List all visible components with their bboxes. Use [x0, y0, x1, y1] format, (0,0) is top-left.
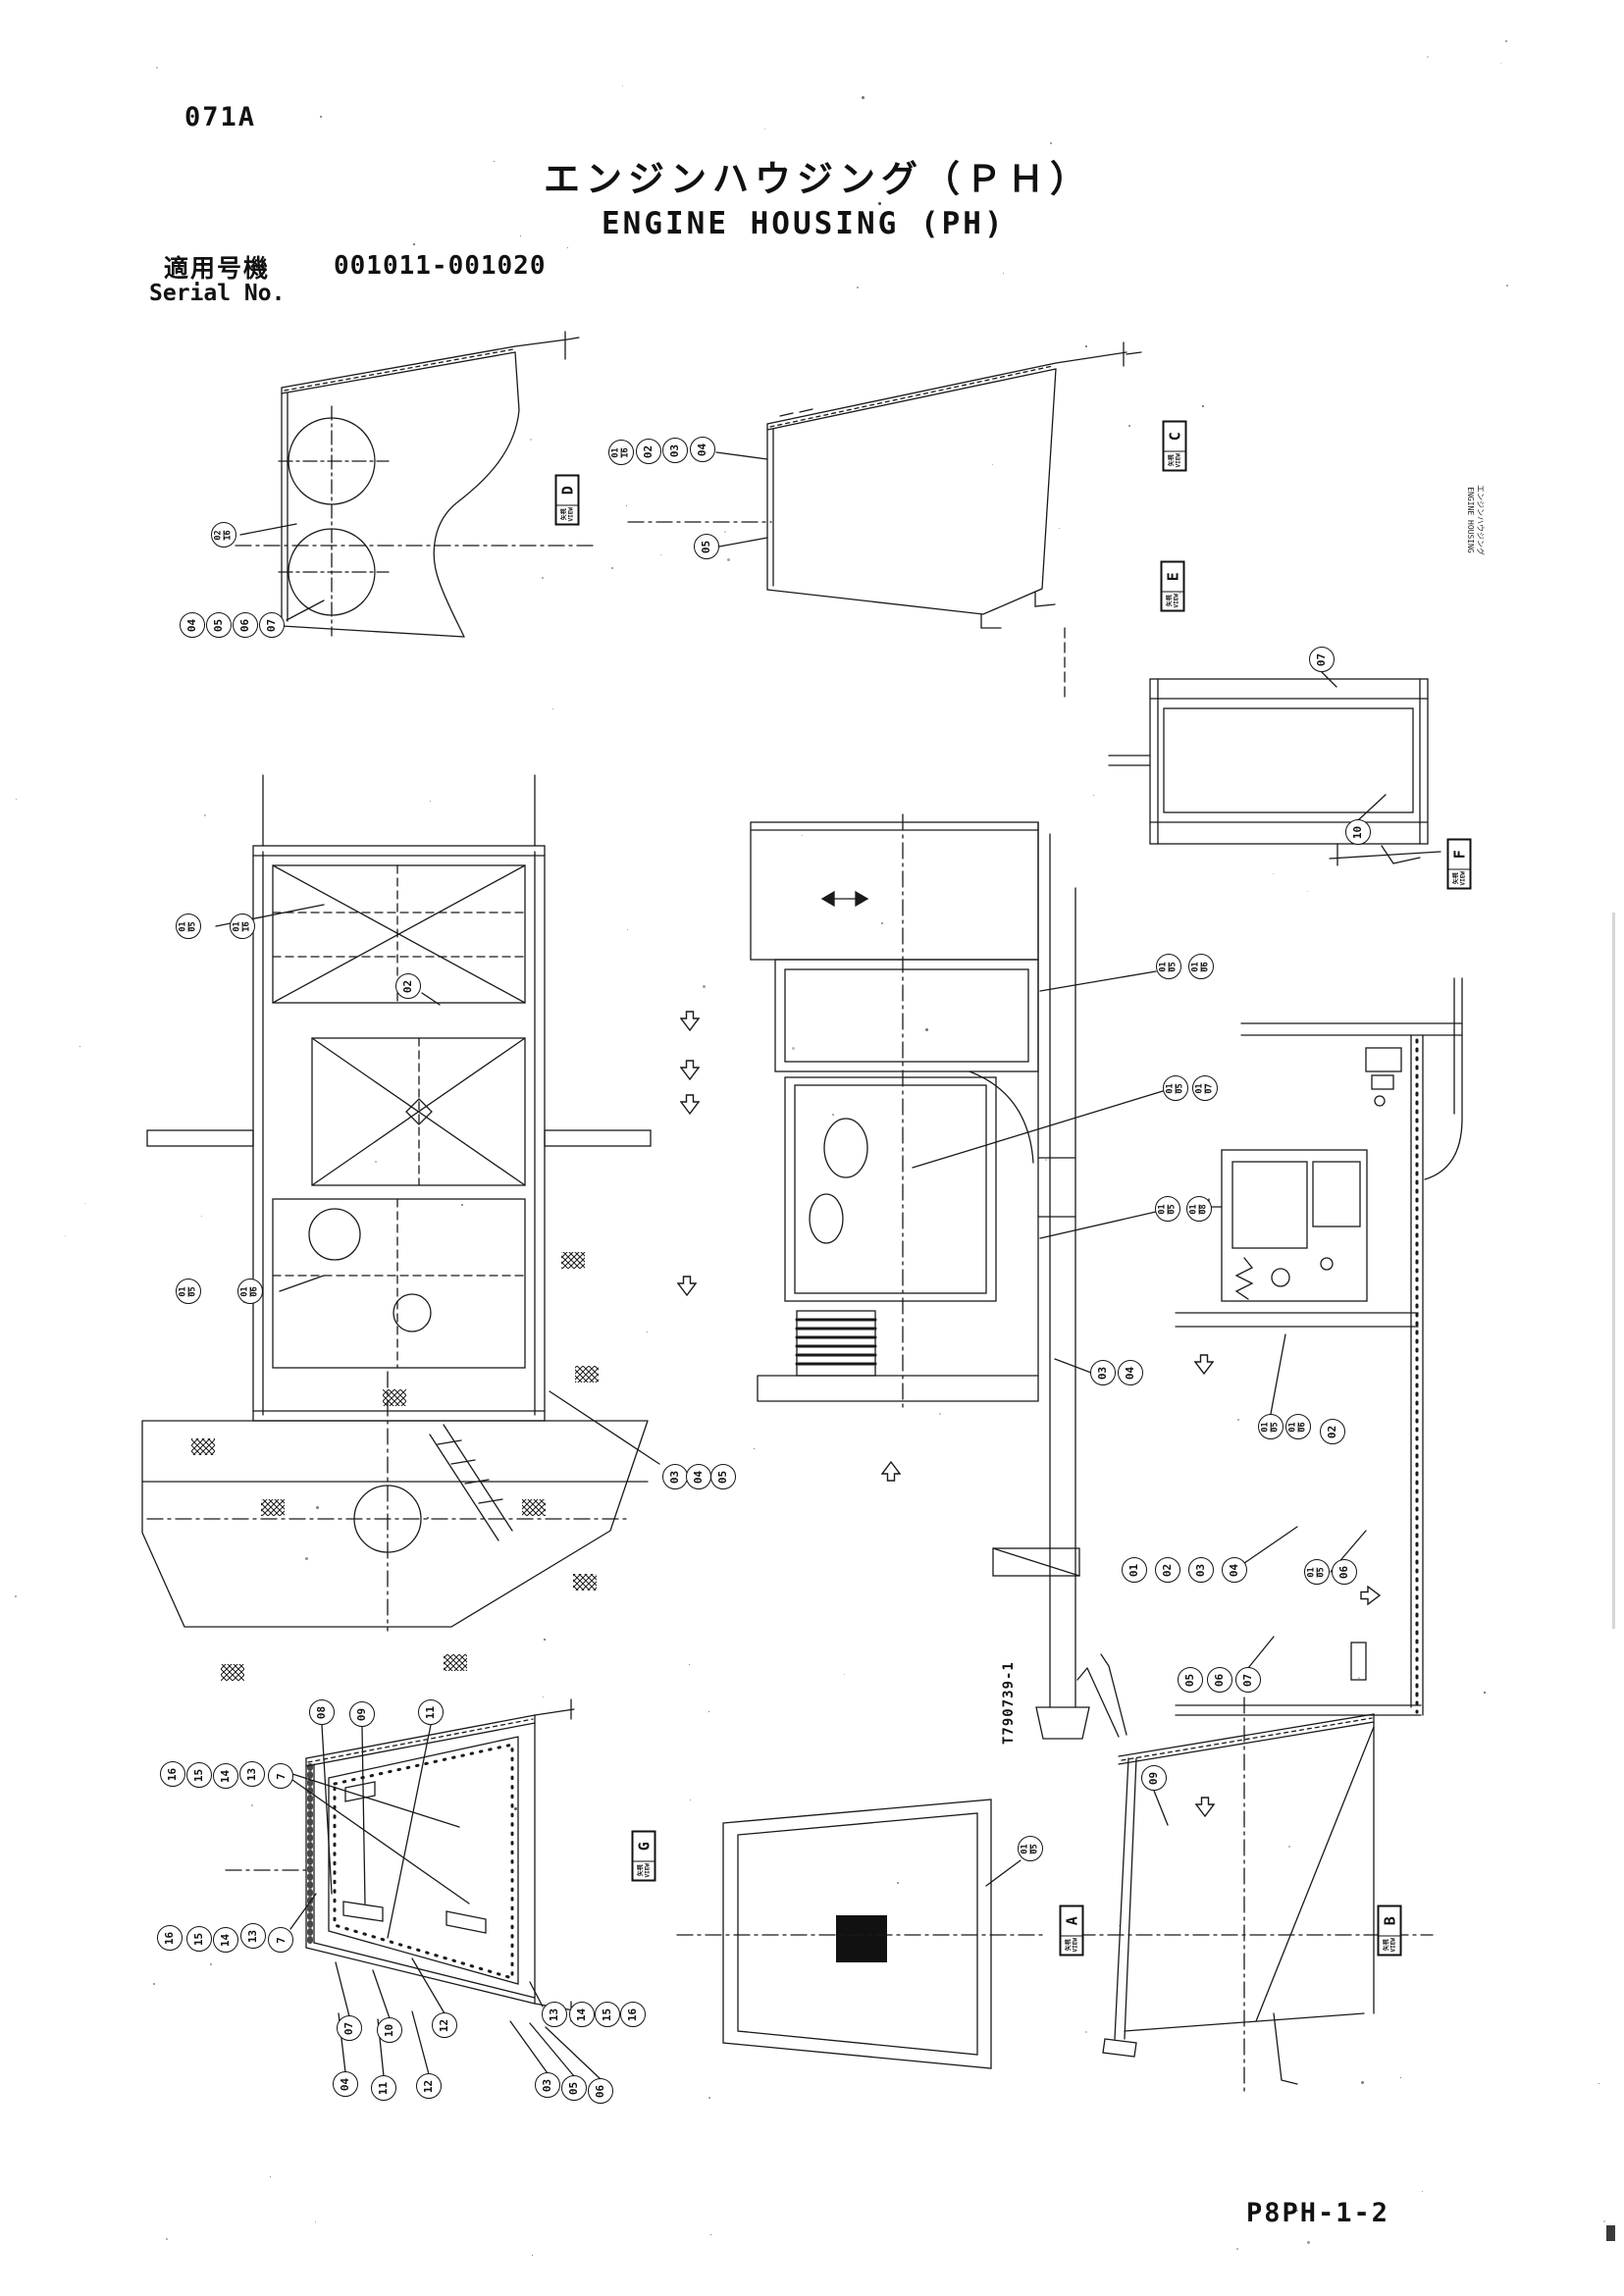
- scan-dust-speck: [514, 1807, 517, 1810]
- view-caption: 矢視VIEW: [1449, 868, 1470, 887]
- part-callout[interactable]: 03: [662, 438, 688, 463]
- callout-number: 05: [1185, 1673, 1196, 1686]
- part-callout[interactable]: 02: [395, 973, 421, 999]
- section-arrow-icon: [680, 1093, 700, 1115]
- part-callout[interactable]: 0105: [1163, 1075, 1188, 1101]
- callout-number: 10: [1353, 825, 1364, 838]
- scan-dust-speck: [243, 1301, 245, 1303]
- callout-number: 04: [1126, 1366, 1136, 1379]
- callout-number: 16: [242, 921, 252, 931]
- callout-number: 01: [1129, 1563, 1140, 1576]
- scan-dust-speck: [204, 814, 206, 816]
- scan-dust-speck: [708, 2097, 710, 2099]
- scan-dust-speck: [530, 439, 532, 441]
- scan-dust-speck: [832, 1114, 834, 1116]
- diagram-bottom-right-frame: [1077, 1654, 1433, 2095]
- scan-dust-speck: [754, 1448, 755, 1449]
- scan-dust-speck: [857, 287, 859, 288]
- scan-dust-speck: [1361, 2081, 1364, 2084]
- scan-dust-speck: [15, 1595, 17, 1597]
- callout-number: 03: [1196, 1563, 1207, 1576]
- callout-number: 01: [180, 921, 188, 931]
- scan-dust-speck: [611, 567, 613, 569]
- view-letter: C: [1165, 423, 1185, 451]
- callout-number: 03: [670, 444, 681, 456]
- scan-dust-speck: [844, 1674, 845, 1675]
- parts-catalog-page: 071A エンジンハウジング（ＰＨ） ENGINE HOUSING (PH) 適…: [0, 0, 1624, 2296]
- scan-dust-speck: [305, 1557, 308, 1560]
- part-callout[interactable]: 0216: [211, 522, 236, 548]
- callout-number: 05: [718, 1470, 729, 1483]
- part-callout[interactable]: 0108: [1186, 1196, 1212, 1222]
- scan-dust-speck: [413, 243, 415, 245]
- scan-dust-speck: [153, 1983, 155, 1985]
- scan-dust-speck: [1427, 56, 1429, 58]
- callout-number: 06: [1201, 962, 1211, 971]
- part-callout[interactable]: 0107: [1192, 1075, 1218, 1101]
- scan-dust-speck: [1288, 1846, 1290, 1848]
- callout-number: 01: [1196, 1083, 1205, 1093]
- part-callout[interactable]: 16: [157, 1925, 183, 1951]
- part-callout[interactable]: 0105: [1258, 1414, 1283, 1439]
- scan-dust-speck: [1484, 1692, 1486, 1694]
- scan-dust-speck: [689, 1664, 690, 1665]
- part-callout[interactable]: 7: [268, 1927, 293, 1953]
- scan-dust-speck: [1296, 2210, 1298, 2212]
- callout-number: 05: [1176, 1083, 1185, 1093]
- callout-number: 12: [440, 2018, 450, 2031]
- part-callout[interactable]: 08: [309, 1699, 335, 1725]
- callout-number: 02: [215, 530, 224, 540]
- callout-number: 16: [168, 1767, 179, 1780]
- part-number-label: T790739-1: [1001, 1661, 1017, 1745]
- part-callout[interactable]: 15: [595, 2002, 620, 2027]
- section-arrow-icon: [680, 1010, 700, 1031]
- scan-dust-speck: [1093, 795, 1094, 796]
- part-callout[interactable]: 03: [535, 2072, 560, 2098]
- callout-number: 10: [385, 2023, 395, 2036]
- view-label-f: 矢視VIEWF: [1447, 839, 1472, 890]
- scan-dust-speck: [542, 577, 544, 579]
- callout-number: 16: [165, 1931, 176, 1944]
- part-callout[interactable]: 0105: [1304, 1559, 1330, 1585]
- view-label-e: 矢視VIEWE: [1161, 561, 1185, 612]
- scan-dust-speck: [1500, 63, 1501, 64]
- callout-number: 05: [569, 2081, 580, 2094]
- part-callout[interactable]: 07: [337, 2015, 362, 2041]
- part-callout[interactable]: 14: [569, 2002, 595, 2027]
- callout-number: 03: [670, 1470, 681, 1483]
- view-letter: A: [1062, 1907, 1082, 1936]
- scan-dust-speck: [1045, 1159, 1047, 1161]
- scan-dust-speck: [925, 1028, 928, 1031]
- callout-number: 13: [550, 2008, 560, 2020]
- part-callout[interactable]: 06: [233, 612, 258, 638]
- callout-number: 01: [1160, 962, 1169, 971]
- part-callout[interactable]: 01: [1122, 1557, 1147, 1583]
- scan-dust-speck: [1179, 593, 1180, 594]
- section-arrow-icon: [1194, 1353, 1214, 1375]
- scan-dust-speck: [375, 1161, 377, 1163]
- part-callout[interactable]: 0105: [176, 913, 201, 939]
- diagram-roof-panel: [142, 775, 659, 1681]
- callout-number: 05: [1169, 962, 1179, 971]
- scan-dust-speck: [727, 558, 730, 561]
- view-caption: 矢視VIEW: [1380, 1935, 1400, 1954]
- scan-dust-speck: [1307, 891, 1308, 892]
- scan-dust-speck: [1202, 405, 1204, 407]
- part-callout[interactable]: 03: [662, 1464, 688, 1489]
- scan-dust-speck: [703, 985, 706, 988]
- view-label-b: 矢視VIEWB: [1378, 1905, 1402, 1957]
- callout-number: 05: [214, 618, 225, 631]
- part-callout[interactable]: 0105: [1155, 1196, 1180, 1222]
- view-label-a: 矢視VIEWA: [1060, 1905, 1084, 1957]
- scan-edge-artifact: [1612, 913, 1615, 1629]
- scan-dust-speck: [166, 2238, 168, 2240]
- callout-number: 02: [644, 444, 655, 457]
- scan-dust-speck: [315, 2221, 316, 2222]
- scan-dust-speck: [320, 116, 322, 118]
- callout-number: 02: [403, 979, 414, 992]
- callout-number: 12: [424, 2079, 435, 2092]
- part-callout[interactable]: 15: [186, 1926, 212, 1952]
- part-callout[interactable]: 06: [1332, 1559, 1357, 1585]
- scan-dust-speck: [520, 235, 521, 236]
- callout-number: 04: [1230, 1563, 1240, 1576]
- scan-dust-speck: [690, 1800, 691, 1800]
- view-letter: E: [1163, 563, 1183, 592]
- scan-dust-speck: [251, 1804, 253, 1806]
- diagram-right-frame: [993, 978, 1462, 1715]
- section-arrow-icon: [1195, 1796, 1215, 1817]
- callout-number: 01: [180, 1286, 188, 1296]
- callout-number: 11: [379, 2081, 390, 2094]
- scan-dust-speck: [1050, 142, 1052, 144]
- part-callout[interactable]: 11: [418, 1699, 444, 1725]
- scan-dust-speck: [1603, 2220, 1605, 2222]
- scan-dust-speck: [65, 1235, 66, 1236]
- scan-dust-speck: [544, 1639, 546, 1641]
- diagram-top-left-cover: [236, 332, 595, 637]
- view-caption: 矢視VIEW: [1062, 1935, 1082, 1954]
- diagram-f-view-panel: [1109, 672, 1441, 865]
- scan-dust-speck: [792, 1047, 795, 1050]
- callout-number: 02: [1328, 1425, 1338, 1437]
- section-arrow-icon: [881, 1461, 901, 1483]
- scan-dust-speck: [627, 929, 628, 930]
- scan-dust-speck: [708, 1711, 709, 1712]
- callout-number: 08: [317, 1705, 328, 1718]
- part-callout[interactable]: 0105: [176, 1278, 201, 1304]
- callout-number: 05: [1271, 1422, 1281, 1432]
- callout-number: 05: [1168, 1204, 1178, 1214]
- part-callout[interactable]: 04: [686, 1464, 711, 1489]
- part-callout[interactable]: 05: [1178, 1667, 1203, 1693]
- section-arrow-icon: [677, 1275, 697, 1296]
- view-letter: F: [1449, 841, 1470, 869]
- part-callout[interactable]: 0105: [1018, 1836, 1043, 1861]
- part-callout[interactable]: 02: [1155, 1557, 1180, 1583]
- scan-corner-mark: [1606, 2225, 1615, 2241]
- scan-dust-speck: [992, 464, 993, 465]
- scan-dust-speck: [1598, 2083, 1599, 2084]
- scan-dust-speck: [660, 554, 661, 555]
- callout-number: 01: [1262, 1422, 1271, 1432]
- scan-dust-speck: [1237, 1419, 1239, 1421]
- scan-dust-speck: [626, 505, 627, 506]
- part-callout[interactable]: 05: [206, 612, 232, 638]
- callout-number: 07: [1243, 1673, 1254, 1686]
- scan-dust-speck: [897, 1882, 899, 1884]
- callout-number: 01: [1022, 1844, 1030, 1853]
- callout-number: 02: [1163, 1563, 1174, 1576]
- scan-dust-speck: [270, 2176, 271, 2177]
- scan-dust-speck: [543, 1696, 544, 1697]
- side-margin-note: エンジンハウジング ENGINE HOUSING: [1465, 456, 1485, 584]
- callout-number: 05: [1030, 1844, 1040, 1853]
- scan-dust-speck: [881, 922, 883, 924]
- callout-number: 08: [1199, 1204, 1209, 1214]
- callout-number: 01: [241, 1286, 250, 1296]
- callout-number: 16: [224, 530, 234, 540]
- part-callout[interactable]: 09: [1141, 1765, 1167, 1791]
- scan-dust-speck: [1119, 1925, 1120, 1926]
- scan-dust-speck: [622, 85, 623, 86]
- part-callout[interactable]: 13: [240, 1923, 266, 1949]
- scan-dust-speck: [764, 129, 765, 130]
- callout-number: 05: [1317, 1567, 1327, 1577]
- part-callout[interactable]: 05: [710, 1464, 736, 1489]
- part-callout[interactable]: 0105: [1156, 954, 1181, 979]
- callout-number: 01: [234, 921, 242, 931]
- scan-dust-speck: [1003, 273, 1004, 274]
- callout-number: 11: [426, 1705, 437, 1718]
- part-callout[interactable]: 04: [690, 437, 715, 462]
- callout-number: 01: [1167, 1083, 1176, 1093]
- part-callout[interactable]: 0116: [608, 440, 634, 465]
- callout-number: 01: [1190, 1204, 1199, 1214]
- scan-dust-speck: [1236, 2248, 1238, 2250]
- callout-number: 01: [1308, 1567, 1317, 1577]
- part-callout[interactable]: 12: [432, 2012, 457, 2038]
- part-callout[interactable]: 13: [542, 2002, 567, 2027]
- scan-dust-speck: [461, 1204, 463, 1206]
- callout-number: 14: [221, 1769, 232, 1782]
- view-label-c: 矢視VIEWC: [1163, 421, 1187, 472]
- scan-dust-speck: [567, 247, 568, 248]
- callout-number: 05: [188, 1286, 198, 1296]
- callout-number: 15: [194, 1932, 205, 1945]
- scan-dust-speck: [1085, 345, 1087, 347]
- scan-dust-speck: [802, 835, 803, 836]
- scan-dust-speck: [1506, 285, 1508, 287]
- scan-dust-speck: [862, 96, 864, 99]
- callout-number: 07: [1317, 652, 1328, 665]
- callout-number: 09: [1149, 1771, 1160, 1784]
- scan-dust-speck: [1422, 2191, 1423, 2192]
- view-letter: D: [557, 477, 578, 505]
- scan-dust-speck: [1128, 425, 1130, 427]
- scan-dust-speck: [1085, 2031, 1087, 2033]
- scan-dust-speck: [1059, 528, 1060, 529]
- callout-number: 16: [621, 447, 631, 457]
- diagram-center-panel: [751, 814, 1163, 1739]
- scan-dust-speck: [210, 1963, 212, 1965]
- scan-dust-speck: [84, 1203, 85, 1204]
- part-callout[interactable]: 16: [160, 1761, 185, 1787]
- callout-number: 07: [267, 618, 278, 631]
- callout-number: 15: [194, 1768, 205, 1781]
- scan-dust-speck: [1358, 1677, 1360, 1679]
- callout-number: 04: [187, 618, 198, 631]
- part-callout[interactable]: 0106: [1285, 1414, 1311, 1439]
- scan-dust-speck: [316, 1506, 319, 1509]
- callout-number: 03: [543, 2078, 553, 2091]
- diagram-bottom-middle-front: [677, 1800, 1045, 2068]
- part-callout[interactable]: 04: [180, 612, 205, 638]
- callout-number: 7: [276, 1937, 287, 1944]
- side-note-japanese: エンジンハウジング: [1475, 456, 1485, 584]
- scan-dust-speck: [427, 1517, 429, 1519]
- section-arrow-icon: [1359, 1586, 1381, 1605]
- callout-number: 7: [276, 1773, 287, 1780]
- callout-number: 07: [344, 2021, 355, 2034]
- callout-number: 04: [698, 443, 708, 455]
- scan-dust-speck: [724, 531, 726, 533]
- view-label-g: 矢視VIEWG: [632, 1831, 656, 1882]
- scan-dust-speck: [1273, 873, 1274, 874]
- part-callout[interactable]: 03: [1188, 1557, 1214, 1583]
- callout-number: 14: [577, 2008, 588, 2020]
- scan-dust-speck: [532, 2255, 533, 2256]
- callout-number: 14: [221, 1933, 232, 1946]
- side-note-english: ENGINE HOUSING: [1465, 456, 1475, 584]
- part-callout[interactable]: 06: [588, 2078, 613, 2104]
- scan-dust-speck: [1505, 40, 1507, 42]
- part-callout[interactable]: 0106: [1188, 954, 1214, 979]
- part-callout[interactable]: 03: [1090, 1360, 1116, 1385]
- view-caption: 矢視VIEW: [634, 1860, 655, 1879]
- part-callout[interactable]: 12: [416, 2073, 442, 2099]
- scan-dust-speck: [647, 1331, 648, 1332]
- scan-dust-speck: [156, 67, 158, 69]
- part-callout[interactable]: 16: [620, 2002, 646, 2027]
- part-callout[interactable]: 09: [349, 1701, 375, 1727]
- callout-number: 04: [341, 2077, 351, 2090]
- scan-dust-speck: [1307, 2241, 1310, 2244]
- view-caption: 矢視VIEW: [1165, 450, 1185, 469]
- part-callout[interactable]: 0116: [230, 913, 255, 939]
- callout-number: 13: [247, 1767, 258, 1780]
- scan-dust-speck: [494, 161, 495, 162]
- callout-number: 15: [602, 2008, 613, 2020]
- view-letter: B: [1380, 1907, 1400, 1936]
- view-letter: G: [634, 1833, 655, 1861]
- scan-dust-speck: [878, 202, 881, 205]
- part-callout[interactable]: 10: [377, 2017, 402, 2043]
- scan-dust-speck: [79, 1046, 80, 1047]
- part-callout[interactable]: 14: [213, 1763, 238, 1789]
- part-callout[interactable]: 04: [1222, 1557, 1247, 1583]
- scan-dust-speck: [710, 2234, 711, 2235]
- callout-number: 06: [1298, 1422, 1308, 1432]
- part-callout[interactable]: 04: [1118, 1360, 1143, 1385]
- diagram-top-middle-panel: [628, 342, 1141, 697]
- part-callout[interactable]: 11: [371, 2075, 396, 2101]
- callout-number: 09: [357, 1707, 368, 1720]
- callout-number: 01: [1159, 1204, 1168, 1214]
- part-callout[interactable]: 07: [259, 612, 285, 638]
- callout-number: 06: [240, 618, 251, 631]
- view-caption: 矢視VIEW: [557, 504, 578, 523]
- view-label-d: 矢視VIEWD: [555, 475, 580, 526]
- scan-dust-speck: [552, 708, 553, 709]
- callout-number: 01: [612, 447, 621, 457]
- part-callout[interactable]: 06: [1207, 1667, 1232, 1693]
- part-callout[interactable]: 15: [186, 1762, 212, 1788]
- section-arrow-icon: [680, 1059, 700, 1080]
- callout-number: 13: [248, 1929, 259, 1942]
- callout-number: 06: [250, 1286, 260, 1296]
- scan-dust-speck: [201, 1216, 202, 1217]
- callout-number: 03: [1098, 1366, 1109, 1379]
- part-callout[interactable]: 07: [1235, 1667, 1261, 1693]
- callout-number: 06: [1215, 1673, 1226, 1686]
- part-callout[interactable]: 02: [636, 439, 661, 464]
- callout-number: 05: [702, 540, 712, 552]
- part-callout[interactable]: 10: [1345, 819, 1371, 845]
- drawing-number: P8PH-1-2: [1246, 2198, 1389, 2228]
- part-callout[interactable]: 05: [694, 534, 719, 559]
- part-callout[interactable]: 07: [1309, 647, 1335, 672]
- part-callout[interactable]: 14: [213, 1927, 238, 1953]
- part-callout[interactable]: 05: [561, 2075, 587, 2101]
- callout-number: 07: [1205, 1083, 1215, 1093]
- part-callout[interactable]: 7: [268, 1763, 293, 1789]
- callout-number: 01: [1192, 962, 1201, 971]
- callout-number: 04: [694, 1470, 705, 1483]
- part-callout[interactable]: 04: [333, 2071, 358, 2097]
- part-callout[interactable]: 02: [1320, 1419, 1345, 1444]
- part-callout[interactable]: 13: [239, 1761, 265, 1787]
- scan-dust-speck: [430, 801, 431, 802]
- callout-number: 06: [1339, 1565, 1350, 1578]
- callout-number: 05: [188, 921, 198, 931]
- callout-number: 16: [628, 2008, 639, 2020]
- scan-dust-speck: [1400, 2077, 1401, 2078]
- scan-dust-speck: [939, 1413, 941, 1415]
- callout-number: 01: [1289, 1422, 1298, 1432]
- callout-number: 06: [596, 2084, 606, 2097]
- part-callout[interactable]: 0106: [237, 1278, 263, 1304]
- scan-dust-speck: [16, 799, 17, 800]
